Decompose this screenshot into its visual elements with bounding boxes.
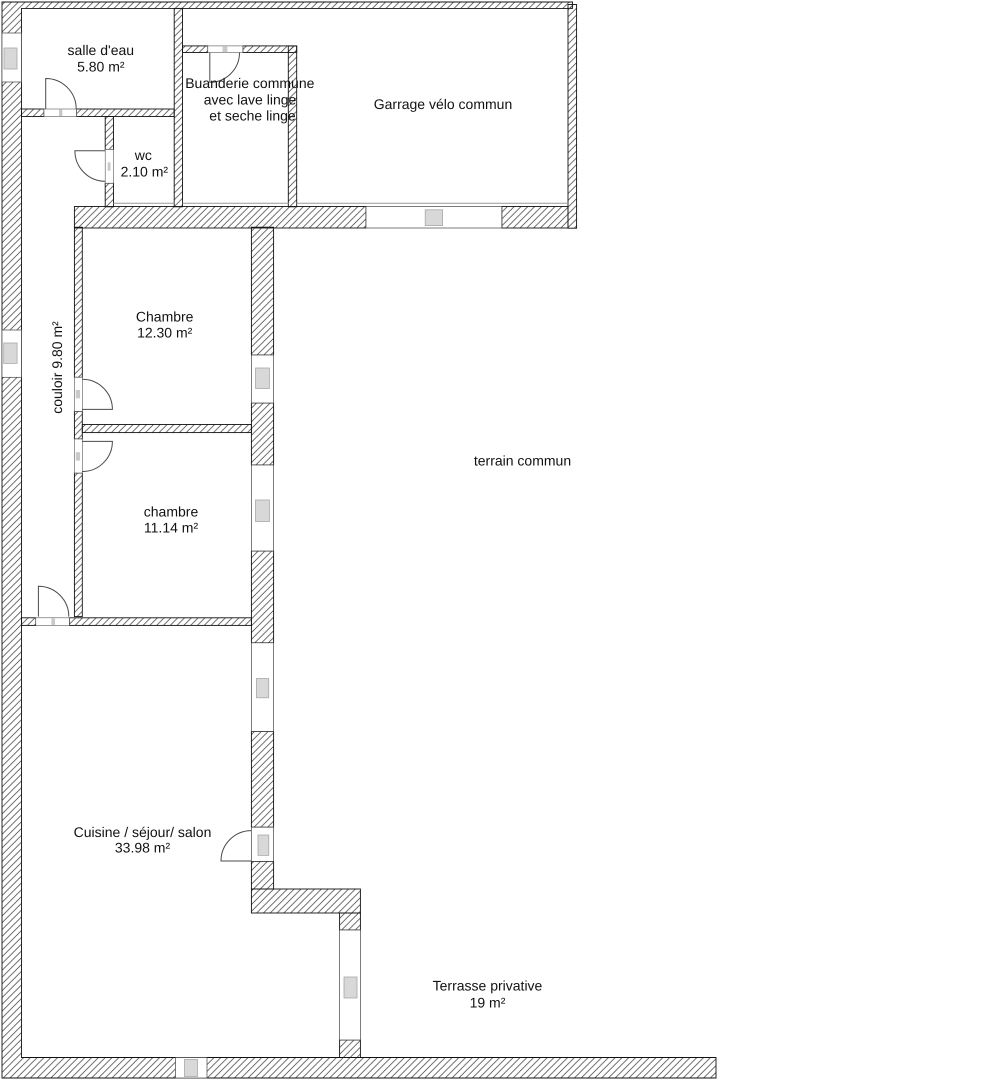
svg-text:33.98 m²: 33.98 m² bbox=[115, 839, 171, 855]
svg-text:wc: wc bbox=[134, 147, 152, 163]
svg-text:5.80 m²: 5.80 m² bbox=[77, 59, 125, 75]
svg-text:avec lave linge: avec lave linge bbox=[204, 91, 297, 107]
svg-text:Chambre: Chambre bbox=[136, 309, 194, 325]
svg-text:Terrasse privative: Terrasse privative bbox=[433, 978, 543, 994]
svg-text:salle d'eau: salle d'eau bbox=[68, 42, 135, 58]
svg-text:11.14 m²: 11.14 m² bbox=[144, 520, 199, 536]
svg-text:Garrage vélo commun: Garrage vélo commun bbox=[374, 96, 513, 112]
svg-text:12.30 m²: 12.30 m² bbox=[137, 325, 193, 341]
svg-text:couloir 9.80 m²: couloir 9.80 m² bbox=[49, 321, 65, 414]
svg-text:terrain commun: terrain commun bbox=[474, 453, 571, 469]
svg-text:Cuisine / séjour/ salon: Cuisine / séjour/ salon bbox=[74, 824, 212, 840]
svg-text:2.10 m²: 2.10 m² bbox=[121, 163, 169, 179]
svg-text:et seche linge: et seche linge bbox=[209, 107, 296, 123]
svg-text:Buanderie commune: Buanderie commune bbox=[185, 75, 314, 91]
svg-text:chambre: chambre bbox=[144, 504, 199, 520]
svg-text:19 m²: 19 m² bbox=[470, 994, 506, 1010]
